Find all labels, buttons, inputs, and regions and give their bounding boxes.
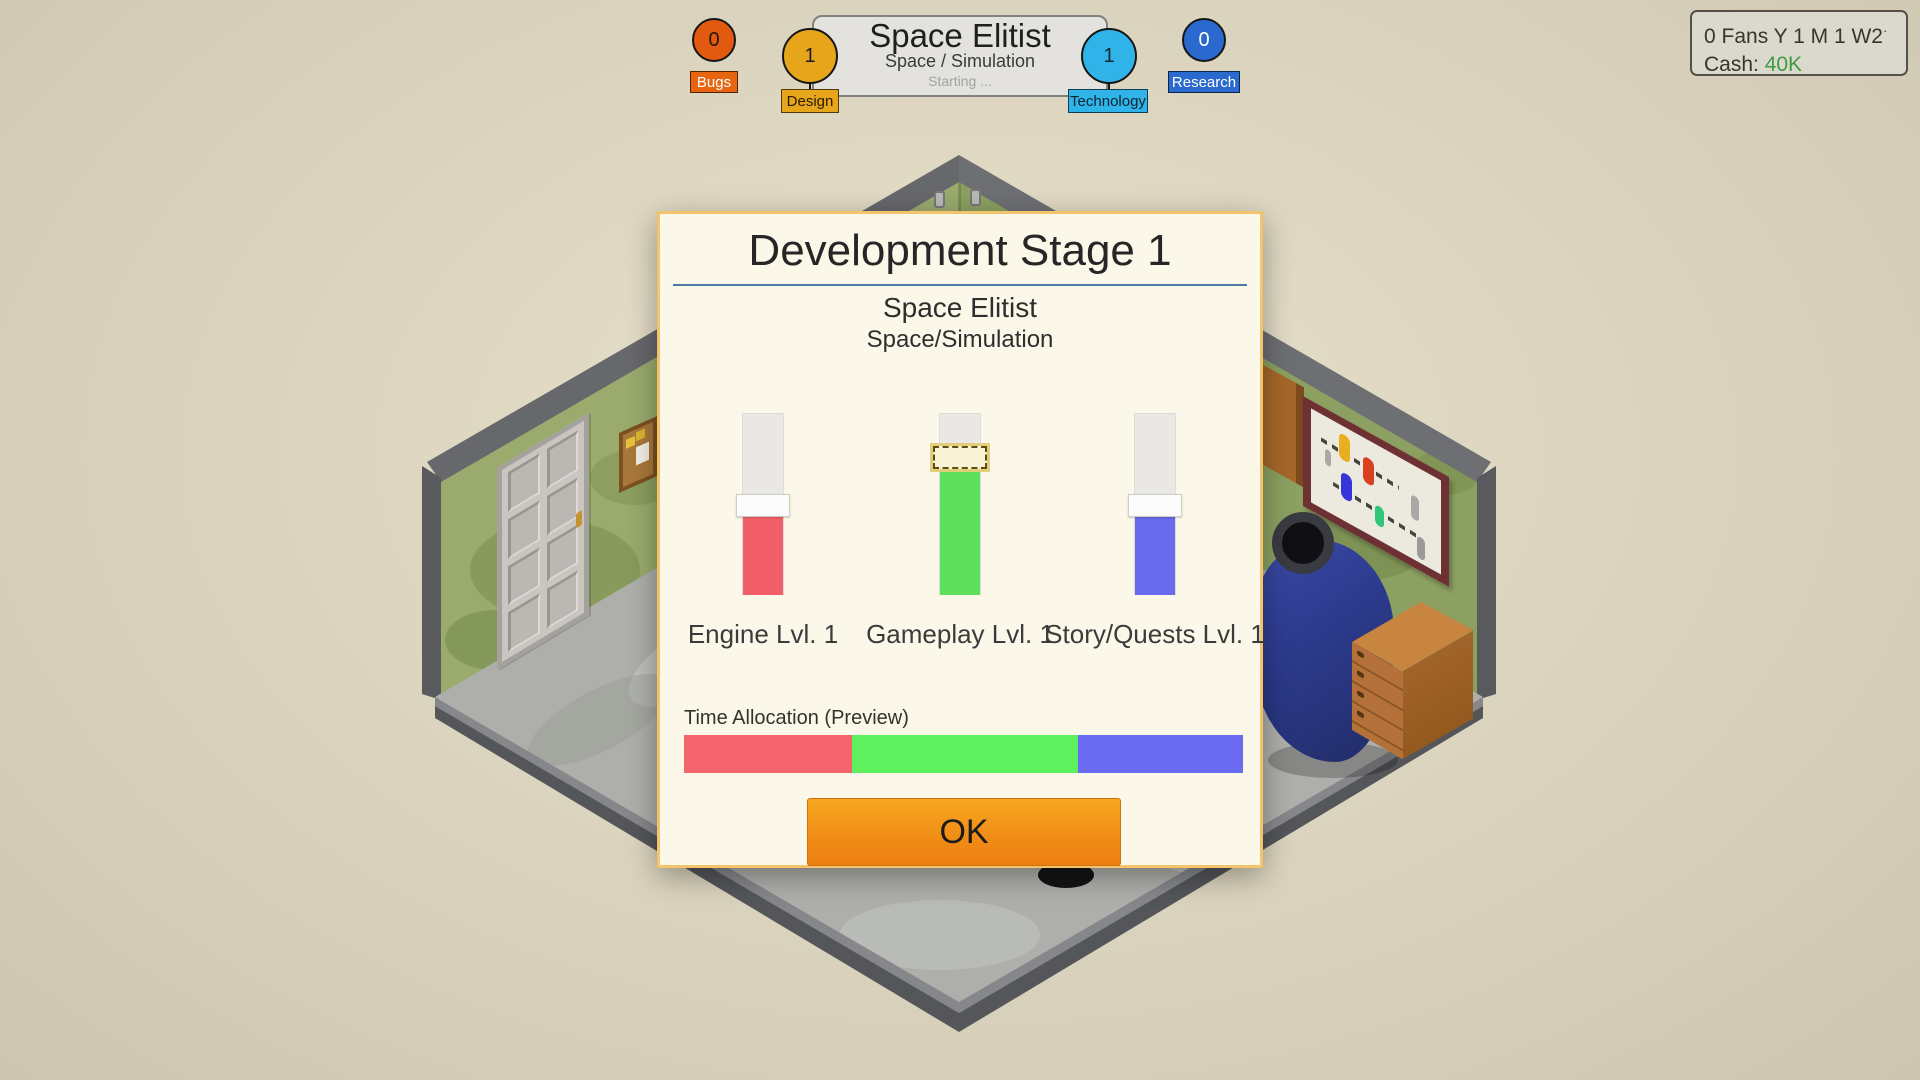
engine-slider-handle[interactable] bbox=[736, 494, 790, 517]
technology-value: 1 bbox=[1103, 45, 1114, 68]
tool-gray-icon bbox=[1417, 535, 1425, 561]
engine-slider[interactable] bbox=[742, 413, 784, 595]
tool-gray-icon bbox=[1325, 448, 1331, 467]
design-value: 1 bbox=[804, 45, 815, 68]
time-allocation-segment-story bbox=[1078, 735, 1243, 773]
game-genre: Space / Simulation bbox=[814, 52, 1106, 71]
wall-lamp-icon bbox=[970, 189, 981, 206]
current-game-card: Space Elitist Space / Simulation Startin… bbox=[812, 15, 1108, 97]
story-quests-slider-label: Story/Quests Lvl. 1 bbox=[1035, 619, 1275, 650]
door-knob-icon bbox=[576, 510, 582, 529]
time-allocation-bar bbox=[684, 735, 1243, 773]
research-value: 0 bbox=[1198, 29, 1209, 52]
screwdriver-green-icon bbox=[1375, 504, 1384, 529]
cash-value: 40K bbox=[1765, 53, 1802, 76]
dialog-game-title: Space Elitist bbox=[660, 292, 1260, 324]
screwdriver-red-icon bbox=[1363, 455, 1374, 487]
bugs-value: 0 bbox=[708, 29, 719, 52]
screwdriver-yellow-icon bbox=[1339, 432, 1350, 464]
gameplay-slider-fill bbox=[940, 469, 980, 595]
time-allocation-segment-gameplay bbox=[852, 735, 1078, 773]
tire-icon bbox=[1272, 512, 1334, 574]
research-counter: 0 bbox=[1182, 18, 1226, 62]
story-quests-slider[interactable] bbox=[1134, 413, 1176, 595]
fans-date-line: 0 Fans Y 1 M 1 W2· bbox=[1704, 17, 1906, 51]
game-title: Space Elitist bbox=[814, 18, 1106, 54]
bugs-label: Bugs bbox=[690, 71, 738, 93]
design-label: Design bbox=[781, 89, 839, 113]
technology-counter: 1 bbox=[1081, 28, 1137, 84]
dialog-game-genre: Space/Simulation bbox=[660, 326, 1260, 354]
bugs-counter: 0 bbox=[692, 18, 736, 62]
ok-button[interactable]: OK bbox=[807, 798, 1121, 866]
story-quests-slider-fill bbox=[1135, 517, 1175, 595]
gameplay-slider-handle[interactable] bbox=[933, 446, 987, 469]
gameplay-slider[interactable] bbox=[939, 413, 981, 595]
technology-label: Technology bbox=[1068, 89, 1148, 113]
day-tick: · bbox=[1883, 23, 1887, 38]
engine-slider-fill bbox=[743, 517, 783, 595]
drawer-cabinet-side bbox=[1403, 631, 1473, 759]
cash-line: Cash: 40K bbox=[1704, 51, 1906, 79]
story-quests-slider-handle[interactable] bbox=[1128, 494, 1182, 517]
time-allocation-segment-engine bbox=[684, 735, 852, 773]
door-panels bbox=[508, 430, 578, 652]
screwdriver-blue-icon bbox=[1341, 471, 1352, 503]
wall-cabinet bbox=[1258, 362, 1304, 487]
game-status: Starting ... bbox=[814, 73, 1106, 89]
wall-lamp-icon bbox=[934, 191, 945, 208]
dialog-title: Development Stage 1 bbox=[660, 226, 1260, 276]
garage-door bbox=[497, 413, 589, 670]
time-allocation-label: Time Allocation (Preview) bbox=[684, 707, 909, 730]
corkboard bbox=[619, 416, 657, 493]
fans-cash-box: 0 Fans Y 1 M 1 W2· Cash: 40K bbox=[1690, 10, 1908, 76]
dialog-title-rule bbox=[673, 284, 1247, 286]
development-stage-dialog: Development Stage 1 Space Elitist Space/… bbox=[657, 211, 1263, 868]
design-counter: 1 bbox=[782, 28, 838, 84]
research-label: Research bbox=[1168, 71, 1240, 93]
game-screen: Space Elitist Space / Simulation Startin… bbox=[0, 0, 1920, 1080]
tool-gray-icon bbox=[1411, 494, 1419, 522]
